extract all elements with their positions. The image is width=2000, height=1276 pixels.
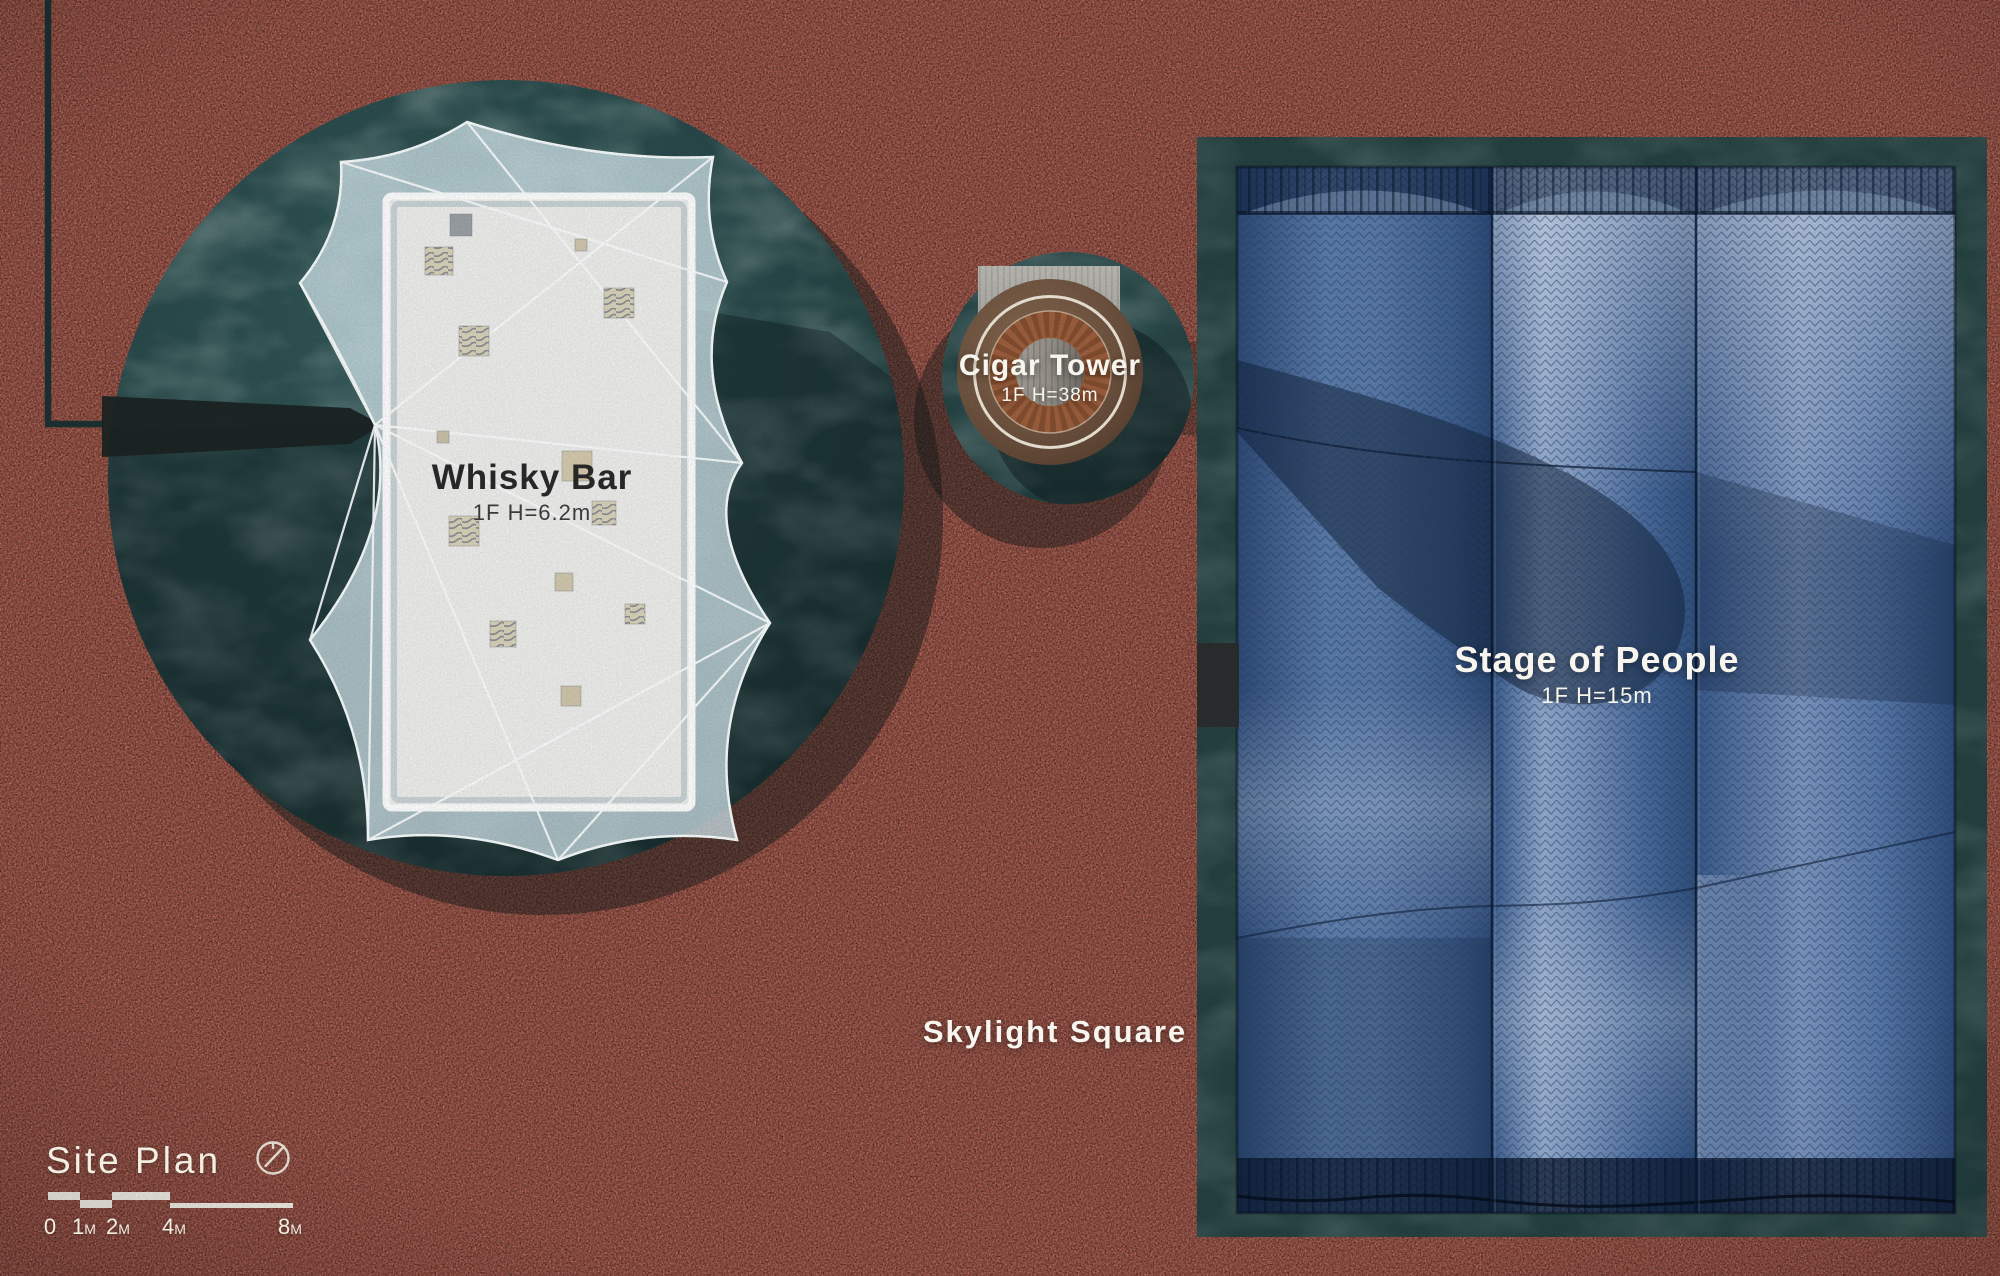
scale-tick-4m: 4M [162,1214,186,1240]
scale-tick-0: 0 [44,1214,56,1240]
site-plan-drawing [0,0,2000,1276]
scale-tick-2m: 2M [106,1214,130,1240]
scale-tick-8m: 8M [278,1214,302,1240]
site-plan-title: Site Plan [46,1140,221,1182]
scale-tick-1m: 1M [72,1214,96,1240]
site-plan-canvas: Whisky Bar 1F H=6.2m Cigar Tower 1F H=38… [0,0,2000,1276]
